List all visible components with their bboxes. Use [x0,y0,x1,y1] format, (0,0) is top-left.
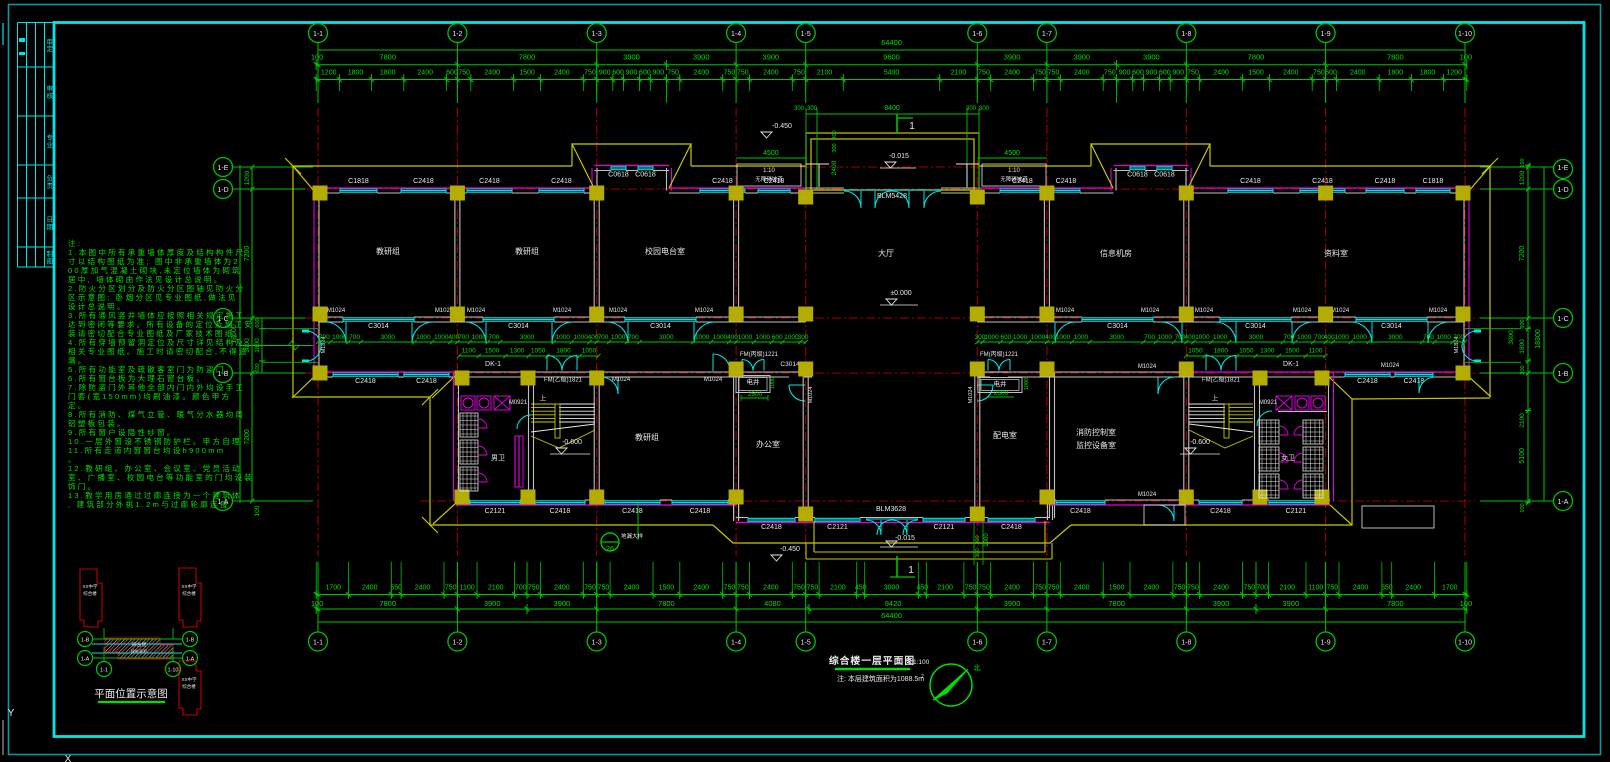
svg-text:2: 2 [921,674,924,680]
svg-text:1-9: 1-9 [1321,31,1331,38]
svg-text:资料室: 资料室 [1324,248,1348,258]
svg-text:门套(宽150mm)均刷油漆。颜色甲方: 门套(宽150mm)均刷油漆。颜色甲方 [68,391,231,401]
svg-text:区示意图; 卧烟分区见专业图纸,做法见: 区示意图; 卧烟分区见专业图纸,做法见 [68,292,238,302]
svg-text:2400: 2400 [763,70,779,77]
svg-text:900: 900 [1146,70,1158,77]
svg-text:400: 400 [1324,334,1335,341]
svg-text:3900: 3900 [554,599,571,608]
svg-text:-0.450: -0.450 [780,546,800,553]
svg-text:M1024: M1024 [612,377,631,383]
svg-text:2400: 2400 [1350,70,1366,77]
svg-text:7800: 7800 [1108,599,1125,608]
svg-text:750: 750 [793,585,805,592]
svg-text:100: 100 [311,53,324,62]
svg-text:1200: 1200 [1519,170,1526,185]
svg-text:无障碍坡道: 无障碍坡道 [1000,175,1028,183]
svg-text:2100: 2100 [1519,413,1526,428]
svg-text:平面位置示意图: 平面位置示意图 [94,687,168,700]
svg-text:XX中学: XX中学 [181,583,197,590]
svg-text:750: 750 [1187,70,1199,77]
svg-text:900: 900 [599,70,611,77]
svg-text:9600: 9600 [883,53,900,62]
svg-text:3900: 3900 [1004,53,1021,62]
svg-text:64400: 64400 [881,611,902,620]
svg-text:1-4: 1-4 [731,31,741,38]
svg-text:, 建筑部分外挑1.2m与过廊轮廓连接: , 建筑部分外挑1.2m与过廊轮廓连接 [68,499,230,509]
svg-text:FM(丙级)1221: FM(丙级)1221 [740,350,779,358]
svg-text:1-1: 1-1 [313,31,323,38]
svg-text:信息机房: 信息机房 [1100,248,1132,258]
svg-text:日: 日 [47,216,54,224]
svg-text:C2418: C2418 [1210,508,1231,515]
svg-text:1000: 1000 [1213,334,1228,341]
svg-text:1200: 1200 [244,170,251,185]
svg-text:2.防火分区划分及防火分区图轴见防火分: 2.防火分区划分及防火分区图轴见防火分 [68,283,245,293]
svg-text:300: 300 [1520,365,1526,374]
svg-text:C0618: C0618 [1154,172,1175,179]
svg-text:2400: 2400 [484,70,500,77]
svg-text:7800: 7800 [379,599,396,608]
svg-text:1-1: 1-1 [313,640,323,647]
svg-text:1-A: 1-A [81,656,90,662]
svg-text:750: 750 [445,585,457,592]
svg-text:-0.015: -0.015 [895,535,915,542]
svg-text:700: 700 [1256,585,1268,592]
svg-text:1000: 1000 [434,334,449,341]
svg-text:1200: 1200 [1447,70,1463,77]
svg-text:1-10: 1-10 [167,667,178,673]
svg-text:综合楼: 综合楼 [182,683,196,690]
svg-text:2400: 2400 [1004,585,1020,592]
svg-text:1-8: 1-8 [1181,31,1191,38]
svg-text:1-6: 1-6 [972,640,982,647]
svg-text:XX中学: XX中学 [82,583,98,590]
svg-text:-0.015: -0.015 [889,153,909,160]
svg-text:1-B: 1-B [186,637,195,643]
svg-text:2100: 2100 [1279,585,1295,592]
svg-text:300: 300 [794,106,805,112]
svg-text:X: X [65,754,72,762]
svg-text:1-A: 1-A [186,656,195,662]
svg-text:7.除防盗门外其他全部内门内外均设手工: 7.除防盗门外其他全部内门内外均设手工 [68,382,245,392]
svg-text:1800: 1800 [1519,339,1526,354]
svg-text:3000: 3000 [1249,334,1264,341]
svg-text:建筑面积: 建筑面积 [131,648,148,655]
svg-text:C2121: C2121 [1286,508,1307,515]
svg-text:C2121: C2121 [827,524,848,531]
svg-text:1000: 1000 [984,334,999,341]
svg-text:1:10: 1:10 [763,168,775,174]
svg-text:750: 750 [528,585,540,592]
svg-text:1700: 1700 [325,585,341,592]
svg-text:办公室: 办公室 [756,439,780,449]
svg-text:定: 定 [47,44,54,53]
svg-text:室、广播室、校园电台等功能室的门均设装: 室、广播室、校园电台等功能室的门均设装 [68,472,254,482]
svg-text:1000: 1000 [713,334,728,341]
svg-text:2400: 2400 [415,585,431,592]
svg-text:审: 审 [47,37,54,46]
svg-text:750: 750 [965,585,977,592]
svg-text:5400: 5400 [884,70,900,77]
svg-text:设计总说明。: 设计总说明。 [68,301,127,311]
svg-text:2100: 2100 [488,585,504,592]
svg-text:C3014: C3014 [508,323,529,330]
svg-text:M1024: M1024 [327,308,346,314]
svg-text:600: 600 [1520,319,1526,328]
svg-text:男卫: 男卫 [491,454,505,462]
svg-text:C3014: C3014 [1381,323,1402,330]
svg-text:100: 100 [1520,158,1526,167]
svg-text:1000: 1000 [1334,334,1349,341]
svg-text:750: 750 [724,585,736,592]
svg-text:300: 300 [832,143,838,152]
svg-text:。: 。 [68,455,78,464]
svg-text:负: 负 [47,174,54,183]
svg-text:900: 900 [1172,70,1184,77]
svg-text:900: 900 [626,70,638,77]
svg-text:750: 750 [978,70,990,77]
svg-text:上: 上 [540,393,547,402]
svg-text:1000: 1000 [556,334,571,341]
svg-text:3900: 3900 [693,53,710,62]
svg-text:M1024: M1024 [553,308,572,314]
svg-text:750: 750 [1326,585,1338,592]
svg-text:1000: 1000 [332,334,347,341]
svg-text:300: 300 [975,548,981,557]
svg-text:无障碍坡道: 无障碍坡道 [755,175,783,183]
svg-text:XX中学: XX中学 [181,676,197,683]
svg-text:750: 750 [1187,585,1199,592]
svg-text:550: 550 [1381,585,1393,592]
svg-text:750: 750 [1243,585,1255,592]
svg-text:1-E: 1-E [1558,165,1569,172]
svg-text:3000: 3000 [520,334,535,341]
svg-text:700: 700 [1144,334,1155,341]
svg-text:1000: 1000 [472,334,487,341]
svg-text:注:: 注: [68,238,82,248]
svg-text:3900: 3900 [1213,599,1230,608]
svg-text:M1024: M1024 [467,308,486,314]
svg-text:3900: 3900 [484,599,501,608]
svg-text:1-7: 1-7 [1042,31,1052,38]
svg-text:1000: 1000 [1074,334,1089,341]
svg-text:1100: 1100 [462,348,476,355]
svg-text:核: 核 [47,91,54,100]
svg-text:700: 700 [598,334,609,341]
svg-text:2400: 2400 [1074,70,1090,77]
svg-text:1-7: 1-7 [1042,640,1052,647]
svg-text:BLM3628: BLM3628 [876,506,906,513]
svg-text:C2418: C2418 [551,178,572,185]
svg-text:教研组: 教研组 [515,246,539,256]
svg-text:1700: 1700 [1442,585,1458,592]
svg-text:C1818: C1818 [348,178,369,185]
svg-text:300: 300 [832,130,838,139]
svg-text:3000: 3000 [1508,330,1515,345]
svg-text:1: 1 [909,121,915,132]
svg-text:3000: 3000 [884,585,900,592]
svg-text:1:10: 1:10 [1008,168,1020,174]
svg-text:FM(乙级)1821: FM(乙级)1821 [1202,376,1241,384]
svg-text:750: 750 [1174,585,1186,592]
svg-text:校园电台室: 校园电台室 [645,246,685,256]
svg-text:1000: 1000 [1158,334,1173,341]
svg-text:C3014: C3014 [780,361,800,368]
svg-text:2100: 2100 [937,585,953,592]
svg-text:900: 900 [652,70,664,77]
svg-text:7800: 7800 [519,53,536,62]
svg-text:1000: 1000 [1056,334,1071,341]
svg-text:饰门。: 饰门。 [68,481,97,491]
svg-text:消防控制室: 消防控制室 [1076,427,1116,437]
svg-text:-0.600: -0.600 [562,439,582,446]
svg-text:C2121: C2121 [934,524,955,531]
svg-text:100: 100 [1520,503,1526,512]
svg-text:C2418: C2418 [416,378,437,385]
svg-text:C2418: C2418 [479,178,500,185]
svg-text:1800: 1800 [1214,348,1229,355]
svg-text:M1024: M1024 [609,308,628,314]
svg-text:M1024: M1024 [695,308,714,314]
svg-text:女卫: 女卫 [1281,453,1295,462]
svg-text:C2418: C2418 [413,178,434,185]
svg-text:1100: 1100 [1308,585,1323,592]
svg-text:300: 300 [966,106,977,112]
svg-text:600: 600 [255,318,261,327]
svg-text:寸以结构图纸为准; 图中非承重墙体为2: 寸以结构图纸为准; 图中非承重墙体为2 [68,256,240,266]
svg-text:300: 300 [807,106,818,112]
svg-text:700: 700 [1423,334,1434,341]
svg-text:7800: 7800 [658,599,675,608]
svg-text:1500: 1500 [1285,348,1300,355]
svg-text:8.所有消防、煤气立管、暖气分水器均周: 8.所有消防、煤气立管、暖气分水器均周 [68,409,245,419]
svg-text:3900: 3900 [1073,53,1090,62]
svg-text:1: 1 [908,565,914,576]
svg-text:13.教学用房通过过廊连接为一个建筑体: 13.教学用房通过过廊连接为一个建筑体 [68,490,242,500]
svg-text:大厅: 大厅 [878,248,894,258]
svg-text:700: 700 [1284,334,1295,341]
svg-text:12.教研组、办公室、会议室、党员活动: 12.教研组、办公室、会议室、党员活动 [68,463,242,473]
svg-text:C2418: C2418 [1240,178,1261,185]
svg-text:600: 600 [612,70,624,77]
svg-text:3900: 3900 [1282,599,1299,608]
svg-text:装请密切配合专业图纸及厂家技术图纸。: 装请密切配合专业图纸及厂家技术图纸。 [68,328,244,338]
svg-text:C2418: C2418 [1056,178,1077,185]
svg-text:电井: 电井 [994,379,1008,388]
svg-text:750: 750 [1034,70,1046,77]
svg-text:M1024: M1024 [1138,492,1157,498]
svg-text:750: 750 [458,70,470,77]
svg-text:M1024: M1024 [1381,363,1400,369]
svg-text:地漏大样: 地漏大样 [621,532,644,540]
svg-text:1000: 1000 [1013,334,1028,341]
svg-text:1-2: 1-2 [452,640,462,647]
svg-text:M1024: M1024 [1141,308,1160,314]
svg-text:700: 700 [458,334,469,341]
svg-text:1000: 1000 [1352,334,1367,341]
svg-text:3.所有通风竖井墙体应按照相关规定施工: 3.所有通风竖井墙体应按照相关规定施工 [68,310,245,320]
svg-text:2400: 2400 [1353,585,1369,592]
svg-text:M1024: M1024 [704,377,723,383]
svg-text:2400: 2400 [554,585,570,592]
svg-text:3900: 3900 [1004,599,1021,608]
svg-text:7200: 7200 [1519,246,1526,262]
svg-text:5100: 5100 [1519,448,1526,464]
svg-text:2100: 2100 [817,70,833,77]
svg-text:750: 750 [1313,70,1325,77]
svg-text:图: 图 [47,258,54,266]
svg-text:1100: 1100 [1309,348,1323,355]
svg-text:100: 100 [1460,599,1473,608]
svg-text:1000: 1000 [695,334,710,341]
svg-text:7800: 7800 [1387,599,1404,608]
svg-text:M1024: M1024 [1195,308,1214,314]
svg-text:750: 750 [1104,70,1116,77]
svg-text:750: 750 [978,585,990,592]
svg-text:700: 700 [628,334,639,341]
svg-text:1-B: 1-B [81,637,90,643]
svg-text:M1024: M1024 [1429,308,1448,314]
svg-text:700: 700 [1453,334,1464,341]
svg-text:M1024: M1024 [808,387,814,404]
svg-text:1-4: 1-4 [731,640,741,647]
svg-text:100: 100 [254,505,261,516]
svg-text:1000: 1000 [1195,334,1210,341]
svg-text:750: 750 [584,585,596,592]
svg-text:专: 专 [47,133,54,142]
svg-text:业: 业 [47,140,54,149]
svg-text:1050: 1050 [582,348,597,355]
svg-text:3900: 3900 [623,53,640,62]
svg-text:3900: 3900 [763,53,780,62]
svg-text:DK-1: DK-1 [1283,361,1299,368]
svg-text:1800: 1800 [1388,70,1404,77]
svg-text:1800: 1800 [556,348,571,355]
svg-text:C1818: C1818 [1423,178,1444,185]
svg-text:2500: 2500 [994,390,1009,397]
svg-text:M0921: M0921 [1259,400,1278,406]
svg-text:1000: 1000 [1024,378,1030,390]
svg-text:1-C: 1-C [1557,316,1568,323]
svg-text:4500: 4500 [763,150,779,157]
svg-text:C0618: C0618 [1127,172,1148,179]
svg-text:600: 600 [639,70,651,77]
svg-text:C2418: C2418 [1375,178,1396,185]
svg-text:4.所有穿墙预留洞定位及尺寸详见结构及: 4.所有穿墙预留洞定位及尺寸详见结构及 [68,337,245,347]
svg-text:750: 750 [667,70,679,77]
svg-text:1-10: 1-10 [1458,640,1472,647]
svg-text:300: 300 [798,334,809,341]
svg-text:综合楼一层平面图: 综合楼一层平面图 [829,654,915,667]
svg-text:责: 责 [47,181,54,190]
svg-text:监控设备室: 监控设备室 [1076,440,1116,450]
svg-text:北: 北 [974,664,981,672]
svg-text:1000: 1000 [1436,334,1451,341]
svg-text:750: 750 [1048,585,1060,592]
svg-text:1-6: 1-6 [972,31,982,38]
svg-text:C2418: C2418 [712,178,733,185]
svg-text:C3014: C3014 [1245,323,1266,330]
svg-text:相关专业图纸。施工时请密切配合,不得遗: 相关专业图纸。施工时请密切配合,不得遗 [68,346,249,356]
svg-text:8400: 8400 [884,105,900,112]
svg-text:4500: 4500 [1004,150,1020,157]
svg-text:2400: 2400 [763,585,779,592]
svg-text:300: 300 [975,535,981,544]
svg-text:综合楼: 综合楼 [83,590,97,597]
svg-text:2400: 2400 [1213,70,1229,77]
svg-text:2100: 2100 [830,585,846,592]
svg-text:9.所有窗户设隐性纱窗。: 9.所有窗户设隐性纱窗。 [68,427,177,437]
svg-text:750: 750 [1048,70,1060,77]
svg-text:教研组: 教研组 [376,246,400,256]
svg-text:1-B: 1-B [1558,371,1569,378]
svg-text:7200: 7200 [244,429,251,445]
svg-text:1000: 1000 [738,334,753,341]
svg-text:2400: 2400 [693,70,709,77]
svg-text:300: 300 [979,106,990,112]
svg-text:-0.450: -0.450 [772,123,792,130]
svg-text:C3014: C3014 [368,323,389,330]
svg-text:M0921: M0921 [509,400,528,406]
svg-text:2400: 2400 [1144,585,1160,592]
svg-text:1100: 1100 [460,585,475,592]
svg-text:1-5: 1-5 [801,31,811,38]
svg-text:1800: 1800 [380,70,396,77]
svg-text:1-5: 1-5 [801,640,811,647]
svg-text:1500: 1500 [519,70,535,77]
svg-text:750: 750 [1034,585,1046,592]
svg-text:2400: 2400 [693,585,709,592]
svg-text:600: 600 [1325,70,1337,77]
svg-text:1300: 1300 [510,348,525,355]
svg-text:1050: 1050 [1188,348,1203,355]
svg-text:600: 600 [1159,70,1171,77]
svg-text:1000: 1000 [416,334,431,341]
svg-text:2400: 2400 [1074,585,1090,592]
svg-text:C2418: C2418 [690,508,711,515]
svg-text:00厚加气混凝土砌块,未定位墙体为砌筑: 00厚加气混凝土砌块,未定位墙体为砌筑 [68,265,242,275]
svg-text:1-3: 1-3 [592,31,602,38]
svg-text:2500: 2500 [748,391,763,398]
svg-text:M1024: M1024 [968,387,974,404]
svg-text:FM(丙级)1221: FM(丙级)1221 [980,350,1019,358]
svg-text:C3014: C3014 [650,323,671,330]
svg-text:1050: 1050 [531,348,546,355]
svg-text:配电室: 配电室 [993,430,1017,440]
svg-text:6.所有窗台板为大理石窗台板。: 6.所有窗台板为大理石窗台板。 [68,373,206,383]
svg-text:3900: 3900 [1143,53,1160,62]
svg-text:900: 900 [1119,70,1131,77]
svg-text:600: 600 [772,334,783,341]
svg-text:750: 750 [807,585,819,592]
svg-text:C2418: C2418 [622,508,643,515]
svg-text:600: 600 [446,70,458,77]
svg-text:2400: 2400 [1405,585,1421,592]
svg-text:1800: 1800 [348,70,364,77]
svg-text:教研组: 教研组 [635,432,659,442]
svg-text:7800: 7800 [1248,53,1265,62]
svg-text:综合楼: 综合楼 [132,641,147,648]
svg-text:电井: 电井 [747,377,761,386]
svg-text:1-D: 1-D [217,187,228,194]
svg-text:3000: 3000 [1388,334,1403,341]
svg-text:400: 400 [1045,334,1056,341]
svg-text:750: 750 [737,585,749,592]
svg-text:11.所有走道内窗窗台均设h900mm: 11.所有走道内窗窗台均设h900mm [68,445,225,455]
svg-text:2400: 2400 [1004,70,1020,77]
svg-text:1:100: 1:100 [913,659,930,666]
svg-text:1-9: 1-9 [1321,640,1331,647]
